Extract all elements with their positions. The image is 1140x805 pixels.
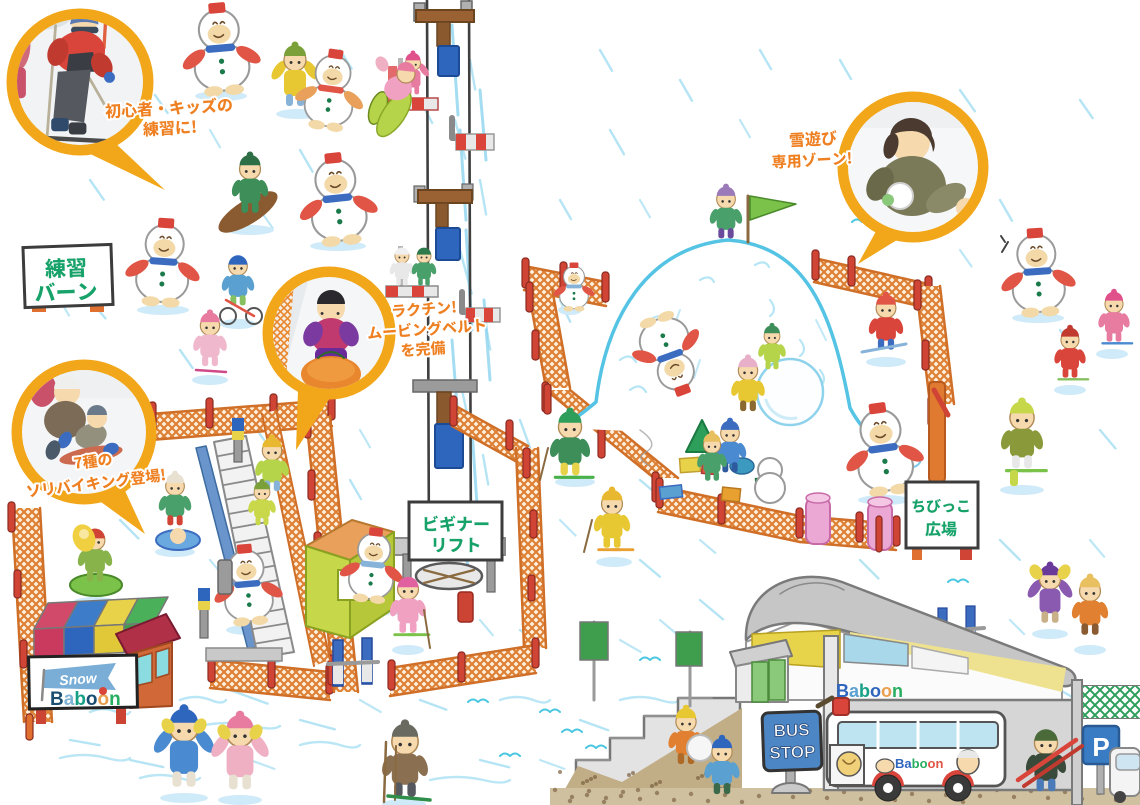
svg-text:STOP: STOP xyxy=(769,742,816,763)
svg-text:Baboon: Baboon xyxy=(895,756,943,771)
svg-text:P: P xyxy=(1092,732,1109,762)
svg-text:BUS: BUS xyxy=(773,720,810,740)
svg-text:Snow: Snow xyxy=(59,670,98,689)
svg-text:Baboon: Baboon xyxy=(50,689,121,710)
